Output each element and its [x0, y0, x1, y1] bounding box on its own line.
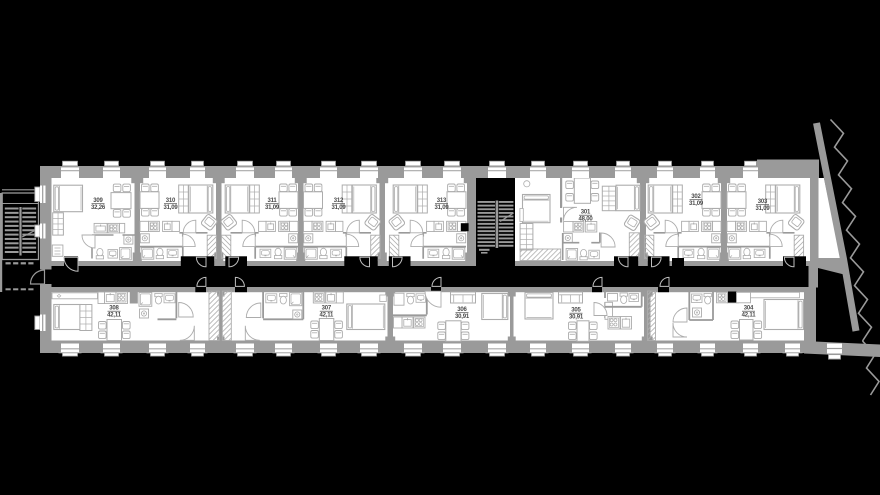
svg-text:42,11: 42,11 — [319, 312, 334, 318]
svg-text:308: 308 — [109, 306, 119, 312]
svg-text:305: 305 — [571, 308, 581, 314]
svg-text:31,09: 31,09 — [689, 201, 704, 207]
svg-text:301: 301 — [581, 210, 591, 216]
svg-text:313: 313 — [437, 198, 447, 204]
svg-text:310: 310 — [166, 198, 176, 204]
svg-text:42,11: 42,11 — [742, 312, 757, 318]
svg-text:311: 311 — [267, 198, 277, 204]
svg-text:307: 307 — [322, 306, 332, 312]
svg-text:31,09: 31,09 — [163, 205, 178, 211]
svg-text:312: 312 — [334, 198, 344, 204]
svg-text:32,26: 32,26 — [91, 205, 106, 211]
svg-text:302: 302 — [691, 194, 701, 200]
svg-text:31,09: 31,09 — [265, 205, 280, 211]
svg-text:31,09: 31,09 — [434, 205, 449, 211]
svg-text:42,11: 42,11 — [107, 312, 122, 318]
svg-text:30,91: 30,91 — [455, 314, 470, 320]
svg-text:303: 303 — [758, 199, 768, 205]
svg-text:30,91: 30,91 — [569, 314, 584, 320]
svg-text:306: 306 — [457, 307, 467, 313]
svg-text:309: 309 — [93, 198, 103, 204]
svg-text:48,00: 48,00 — [578, 216, 593, 222]
svg-text:31,09: 31,09 — [755, 206, 770, 212]
svg-text:31,09: 31,09 — [331, 205, 346, 211]
svg-text:304: 304 — [744, 306, 754, 312]
